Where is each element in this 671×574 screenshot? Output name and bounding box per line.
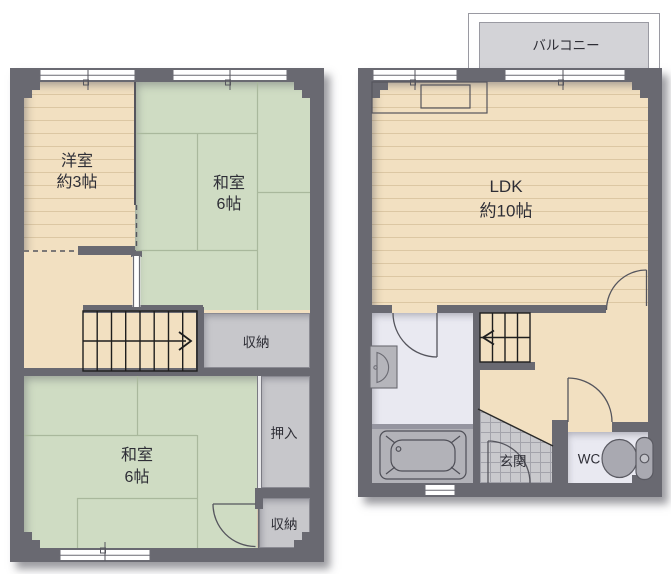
corner-block — [302, 82, 310, 98]
wall — [437, 305, 606, 313]
washroom-floor — [372, 313, 473, 428]
wall — [358, 483, 662, 497]
wall — [648, 68, 662, 497]
wall — [310, 68, 324, 562]
corner-block — [640, 467, 648, 483]
genkan-label: 玄関 — [500, 450, 527, 470]
bath-divider-wall — [372, 424, 473, 429]
tatami-room-lower-size: 6帖 — [125, 463, 150, 487]
wall — [473, 313, 480, 483]
bath-floor — [372, 429, 473, 483]
storage-bottom-label: 収納 — [271, 513, 298, 533]
ldk-size: 約10帖 — [480, 197, 533, 222]
tatami-room-upper-size: 6帖 — [217, 190, 242, 214]
corner-block — [24, 82, 32, 98]
wall — [10, 68, 324, 82]
wall — [358, 68, 372, 497]
wall — [24, 368, 310, 376]
corner-block — [302, 532, 310, 548]
wall — [358, 68, 662, 82]
tatami-room-lower-label: 和室 — [121, 441, 153, 465]
wall — [83, 305, 203, 313]
closet-label: 押入 — [271, 422, 298, 442]
wall — [131, 250, 142, 257]
storage-mid-label: 収納 — [243, 331, 270, 351]
balcony-label: バルコニー — [532, 34, 599, 54]
western-room-size: 約3帖 — [57, 168, 98, 192]
floorplan-canvas: 洋室 約3帖 和室 6帖 収納 押入 収納 和室 6帖 バルコニー LDK 約1… — [0, 0, 671, 574]
wc-label: WC — [578, 452, 601, 467]
wall — [255, 497, 263, 509]
wall — [475, 362, 535, 370]
wall — [10, 548, 324, 562]
wall — [612, 422, 648, 432]
wall — [255, 488, 310, 498]
ldk-label: LDK — [489, 177, 522, 197]
corner-block — [640, 82, 648, 98]
corner-block — [24, 532, 32, 548]
wall — [78, 246, 135, 255]
wall — [372, 305, 392, 313]
wall — [552, 420, 568, 483]
wall — [10, 68, 24, 562]
wall — [196, 307, 204, 368]
corner-block — [372, 82, 380, 98]
